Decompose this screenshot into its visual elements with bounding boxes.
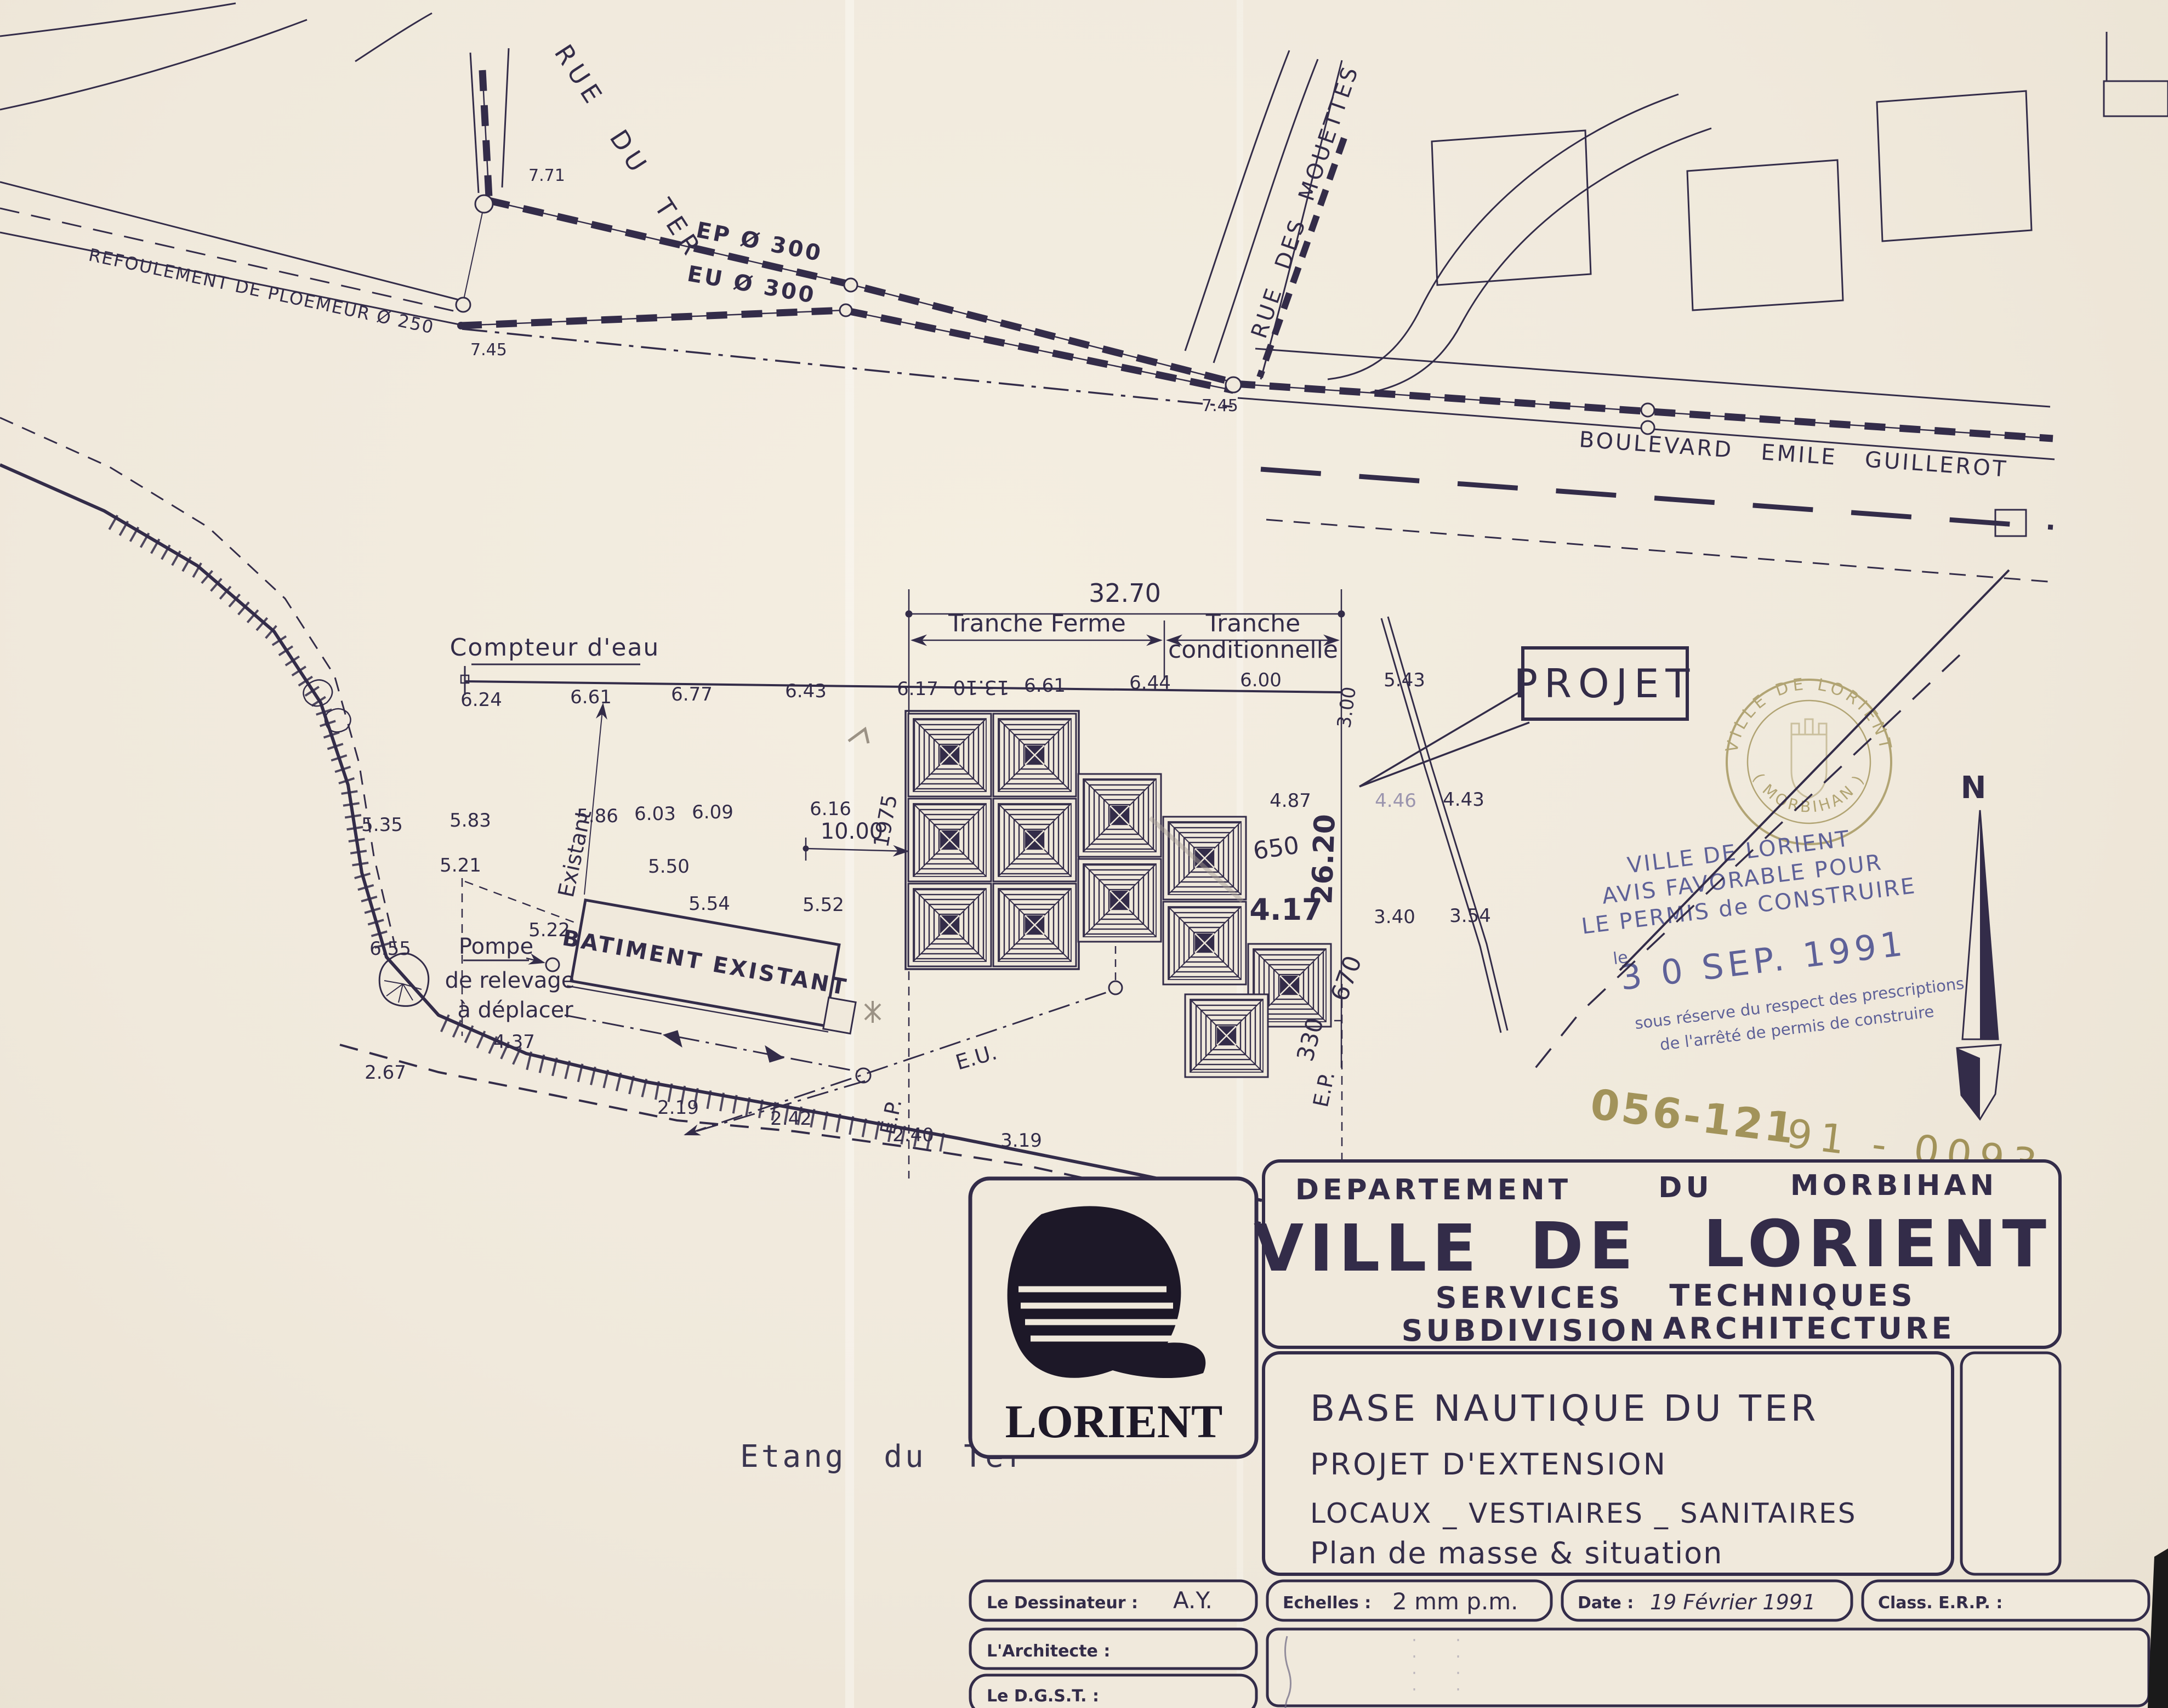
node-dot bbox=[457, 322, 465, 329]
spot-elevation: 2.19 bbox=[657, 1097, 699, 1119]
spot-elevation: 5.52 bbox=[803, 894, 844, 916]
pyramid-module bbox=[1185, 994, 1268, 1077]
manhole bbox=[844, 278, 857, 292]
north-label: N bbox=[1961, 770, 1987, 806]
project-title-line3: LOCAUX _ VESTIAIRES _ SANITAIRES bbox=[1310, 1498, 1857, 1529]
project-title-line2: PROJET D'EXTENSION bbox=[1310, 1447, 1668, 1482]
water-meter-label: Compteur d'eau bbox=[450, 634, 660, 662]
eu-label: E.U. bbox=[953, 1040, 999, 1074]
pyramid-module bbox=[1078, 859, 1161, 942]
manhole bbox=[475, 195, 493, 213]
spot-elevation: 6.16 bbox=[810, 798, 851, 820]
spot-elevation: 5.22 bbox=[528, 919, 570, 941]
parcel bbox=[1877, 91, 2032, 241]
shore-hatch bbox=[112, 522, 385, 955]
pyramid-module bbox=[908, 799, 991, 881]
pyramid-module bbox=[1163, 902, 1246, 984]
services-word: TECHNIQUES bbox=[1669, 1278, 1915, 1313]
crest-tower bbox=[1805, 719, 1813, 735]
pyramid-module bbox=[1078, 774, 1161, 857]
tranche-cond-label2: conditionnelle bbox=[1168, 636, 1338, 664]
dept-word: DU bbox=[1658, 1171, 1712, 1204]
dim-dot bbox=[803, 846, 809, 851]
parcel-blocks bbox=[1432, 32, 2168, 310]
manhole bbox=[456, 298, 470, 312]
tranche-ferme-label: Tranche Ferme bbox=[948, 610, 1126, 637]
spot-elevation: 6.24 bbox=[460, 689, 502, 711]
pump-label-1: Pompe bbox=[459, 934, 533, 959]
logo-wordmark: LORIENT bbox=[1005, 1395, 1223, 1448]
road-edge bbox=[0, 20, 307, 110]
spot-elevation: 4.87 bbox=[1270, 790, 1311, 812]
ville-word: VILLE bbox=[1254, 1210, 1482, 1286]
rock bbox=[325, 709, 351, 732]
scan-artifact bbox=[2148, 1548, 2168, 1708]
boulevard-label: BOULEVARD EMILE GUILLEROT bbox=[1578, 427, 2008, 482]
projet-label: PROJET bbox=[1514, 661, 1697, 707]
crest-tower bbox=[1819, 724, 1826, 735]
manhole bbox=[1109, 981, 1122, 994]
pencil-asterisk bbox=[865, 1001, 880, 1023]
ep-right-label: E.P. bbox=[1308, 1069, 1340, 1109]
rue-des-mouettes-label: RUE DES MOUETTES bbox=[1247, 61, 1364, 341]
road-edge bbox=[0, 3, 236, 36]
spot-elevation: 2.42 bbox=[770, 1108, 812, 1130]
north-arrow: N bbox=[1957, 770, 2001, 1119]
spot-elevation: 5.21 bbox=[440, 855, 481, 876]
arrowhead bbox=[765, 1046, 784, 1062]
connector-line bbox=[464, 213, 482, 299]
signatures-wide-box bbox=[1267, 1629, 2149, 1706]
pump-annotation: Pompe de relevage à déplacer bbox=[445, 934, 575, 1023]
west-road-dashed bbox=[0, 208, 460, 312]
eu300-label: EU Ø 300 bbox=[685, 261, 818, 309]
ville-word: DE bbox=[1530, 1208, 1639, 1284]
architecte-label: L'Architecte : bbox=[987, 1642, 1110, 1661]
project-title-line1: BASE NAUTIQUE DU TER bbox=[1310, 1387, 1819, 1430]
permit-number-1: 056-121 bbox=[1588, 1079, 1799, 1153]
scanned-site-plan-sheet: RUE DU TER RUE DES MOUETTES BOULEVARD EM… bbox=[0, 0, 2168, 1708]
rue-du-ter-edge bbox=[470, 53, 479, 193]
dessinateur-value: A.Y. bbox=[1173, 1587, 1213, 1614]
classe-label: Class. E.R.P. : bbox=[1878, 1593, 2002, 1613]
drawing-number-box bbox=[1961, 1353, 2060, 1574]
pump-label-3: à déplacer bbox=[457, 998, 573, 1023]
echelles-label: Echelles : bbox=[1283, 1593, 1371, 1613]
project-title-line4: Plan de masse & situation bbox=[1310, 1536, 1723, 1570]
parcel bbox=[1687, 160, 1843, 310]
pyramid-module bbox=[908, 884, 991, 966]
road-edge bbox=[355, 13, 432, 61]
echelles-value: 2 mm p.m. bbox=[1392, 1588, 1518, 1615]
spot-elevation: 5.43 bbox=[1384, 669, 1425, 691]
spot-elevation: 6.61 bbox=[1024, 675, 1066, 697]
boulevard-axis bbox=[1261, 469, 2053, 527]
spot-elevation: 6.43 bbox=[785, 680, 827, 702]
spot-elevation: 6.77 bbox=[671, 684, 713, 705]
dim-dot bbox=[1338, 611, 1345, 617]
tranche-cond-label1: Tranche bbox=[1205, 610, 1301, 637]
crest-tower bbox=[1791, 724, 1799, 735]
spot-elevation: 7.71 bbox=[528, 166, 565, 185]
boulevard-curb bbox=[1255, 349, 2050, 407]
spot-elevation: 5.50 bbox=[648, 856, 690, 878]
refoulement-label: REFOULEMENT DE PLOEMEUR Ø 250 bbox=[87, 244, 436, 338]
building-annex bbox=[823, 998, 856, 1034]
spot-elevation: 6.44 bbox=[1129, 672, 1171, 694]
pyramid-module bbox=[993, 884, 1076, 966]
shore-dashed-upper bbox=[0, 418, 396, 949]
date-label: Date : bbox=[1578, 1593, 1634, 1613]
parcel bbox=[1432, 130, 1591, 285]
dim-2620-label: 26.20 bbox=[1306, 813, 1342, 904]
dgst-label: Le D.G.S.T. : bbox=[987, 1687, 1099, 1706]
subdivision-word: SUBDIVISION bbox=[1402, 1313, 1658, 1348]
city-seal-stamp: VILLE DE LORIENT ( MORBIHAN ) bbox=[1722, 675, 1896, 844]
boulevard-south-dashed bbox=[1266, 520, 2055, 582]
pyramid-module bbox=[993, 714, 1076, 796]
parcel bbox=[2104, 81, 2168, 116]
dept-word: MORBIHAN bbox=[1790, 1169, 1998, 1202]
spot-elevation: 6.17 bbox=[897, 678, 938, 700]
spot-elevation: 4.43 bbox=[1443, 789, 1484, 811]
spot-elevation: 3.54 bbox=[1449, 905, 1491, 927]
pump-label-2: de relevage bbox=[445, 968, 575, 993]
pyramid-module bbox=[908, 714, 991, 796]
spot-elevation: 4.37 bbox=[493, 1031, 535, 1053]
spot-elevation: 5.35 bbox=[361, 814, 403, 836]
pyramid-module bbox=[1163, 817, 1246, 899]
subdivision-word: ARCHITECTURE bbox=[1663, 1311, 1955, 1346]
ep300-label: EP Ø 300 bbox=[694, 218, 824, 267]
spot-elevation-417: 4.17 bbox=[1249, 892, 1322, 927]
spot-elevation: 7.45 bbox=[470, 340, 507, 360]
spot-elevation: 5.83 bbox=[449, 810, 491, 832]
rue-du-ter-edge bbox=[502, 48, 509, 187]
manhole bbox=[840, 304, 852, 316]
spot-elevation: 5.54 bbox=[688, 893, 730, 915]
projet-leader bbox=[1359, 686, 1529, 787]
spot-elevation: 6.09 bbox=[692, 801, 733, 823]
spot-elevation: 6.00 bbox=[1240, 669, 1282, 691]
existant-leader bbox=[584, 704, 603, 895]
spot-elevation: 6.61 bbox=[570, 686, 612, 708]
dim-total-label: 32.70 bbox=[1089, 578, 1161, 608]
pencil-note: 650 bbox=[1251, 832, 1301, 866]
spot-elevation: 4.46 bbox=[1375, 790, 1416, 812]
title-block: LORIENT DEPARTEMENT DU MORBIHAN VILLE DE… bbox=[970, 1161, 2149, 1708]
arrowhead bbox=[663, 1031, 682, 1047]
services-word: SERVICES bbox=[1436, 1280, 1624, 1315]
north-base-dark bbox=[1957, 1048, 1980, 1119]
pencil-note: 1975 bbox=[869, 793, 902, 849]
pencil-note: 670 bbox=[1325, 952, 1368, 1005]
plan-drawing: RUE DU TER RUE DES MOUETTES BOULEVARD EM… bbox=[0, 0, 2168, 1708]
dessinateur-label: Le Dessinateur : bbox=[987, 1593, 1138, 1613]
ep300-casing bbox=[489, 201, 1234, 383]
spot-elevation: 5.86 bbox=[577, 805, 618, 827]
pyramid-module bbox=[993, 799, 1076, 881]
spot-elevation: 2.40 bbox=[892, 1124, 934, 1146]
spot-elevation: 3.19 bbox=[1000, 1130, 1042, 1152]
permit-stamp: VILLE DE LORIENT AVIS FAVORABLE POUR LE … bbox=[1573, 815, 1968, 1062]
dept-word: DEPARTEMENT bbox=[1295, 1174, 1572, 1206]
date-value: 19 Février 1991 bbox=[1650, 1590, 1816, 1614]
dim-dot bbox=[906, 611, 912, 617]
projet-leader bbox=[1359, 722, 1529, 787]
spot-elevation: 2.67 bbox=[365, 1062, 406, 1084]
manhole bbox=[1641, 403, 1654, 417]
manhole bbox=[1226, 377, 1241, 392]
spot-elevation: 6.55 bbox=[369, 938, 411, 960]
seal-crest bbox=[1791, 719, 1826, 798]
spot-elevation: 3.40 bbox=[1374, 906, 1415, 928]
ville-word: LORIENT bbox=[1703, 1206, 2052, 1282]
pencil-note: 13.10 bbox=[953, 676, 1009, 698]
existing-building: BATIMENT EXISTANT bbox=[555, 897, 866, 1036]
spot-elevation: 7.45 bbox=[1202, 396, 1238, 415]
spot-elevation: 6.03 bbox=[634, 803, 676, 825]
